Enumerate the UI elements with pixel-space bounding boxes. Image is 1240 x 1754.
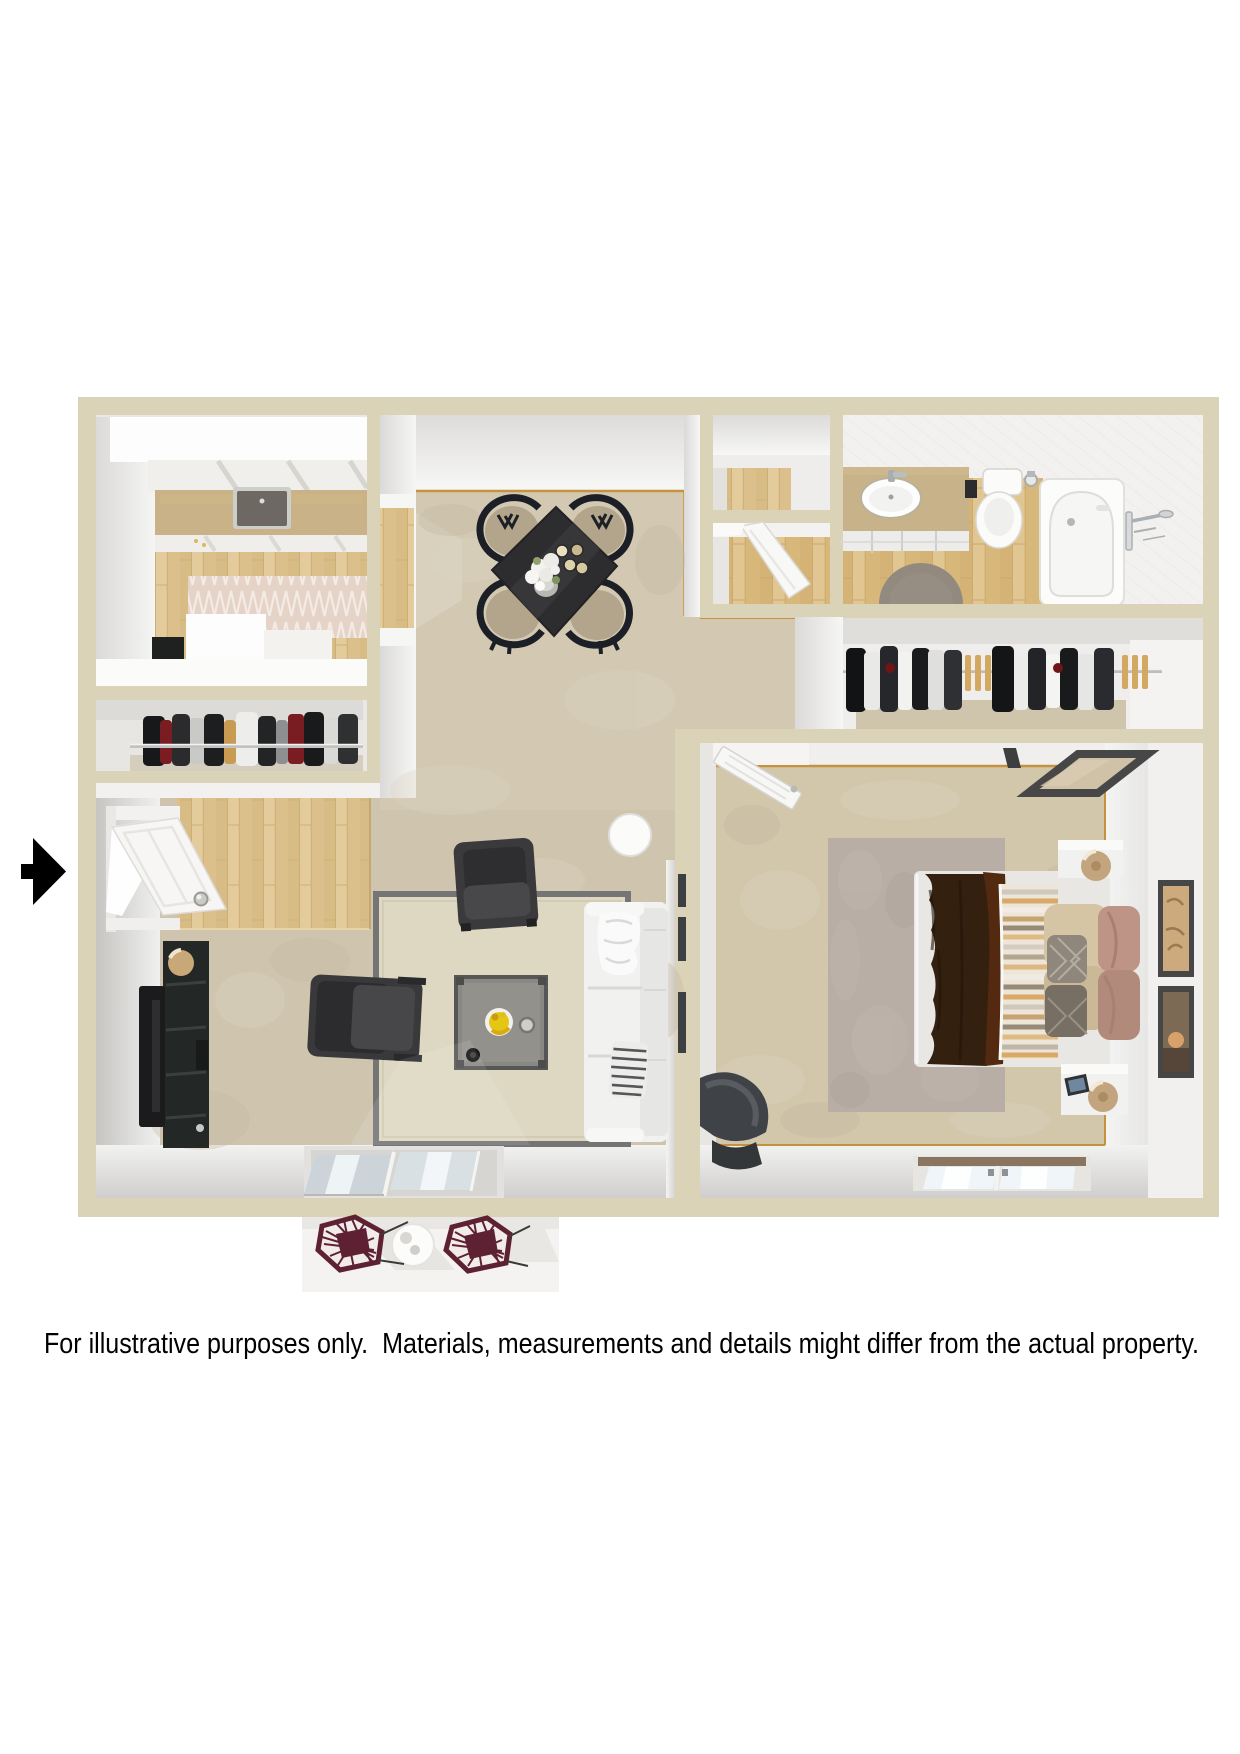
svg-text:For illustrative purposes only: For illustrative purposes only. Material…	[44, 1328, 1199, 1360]
